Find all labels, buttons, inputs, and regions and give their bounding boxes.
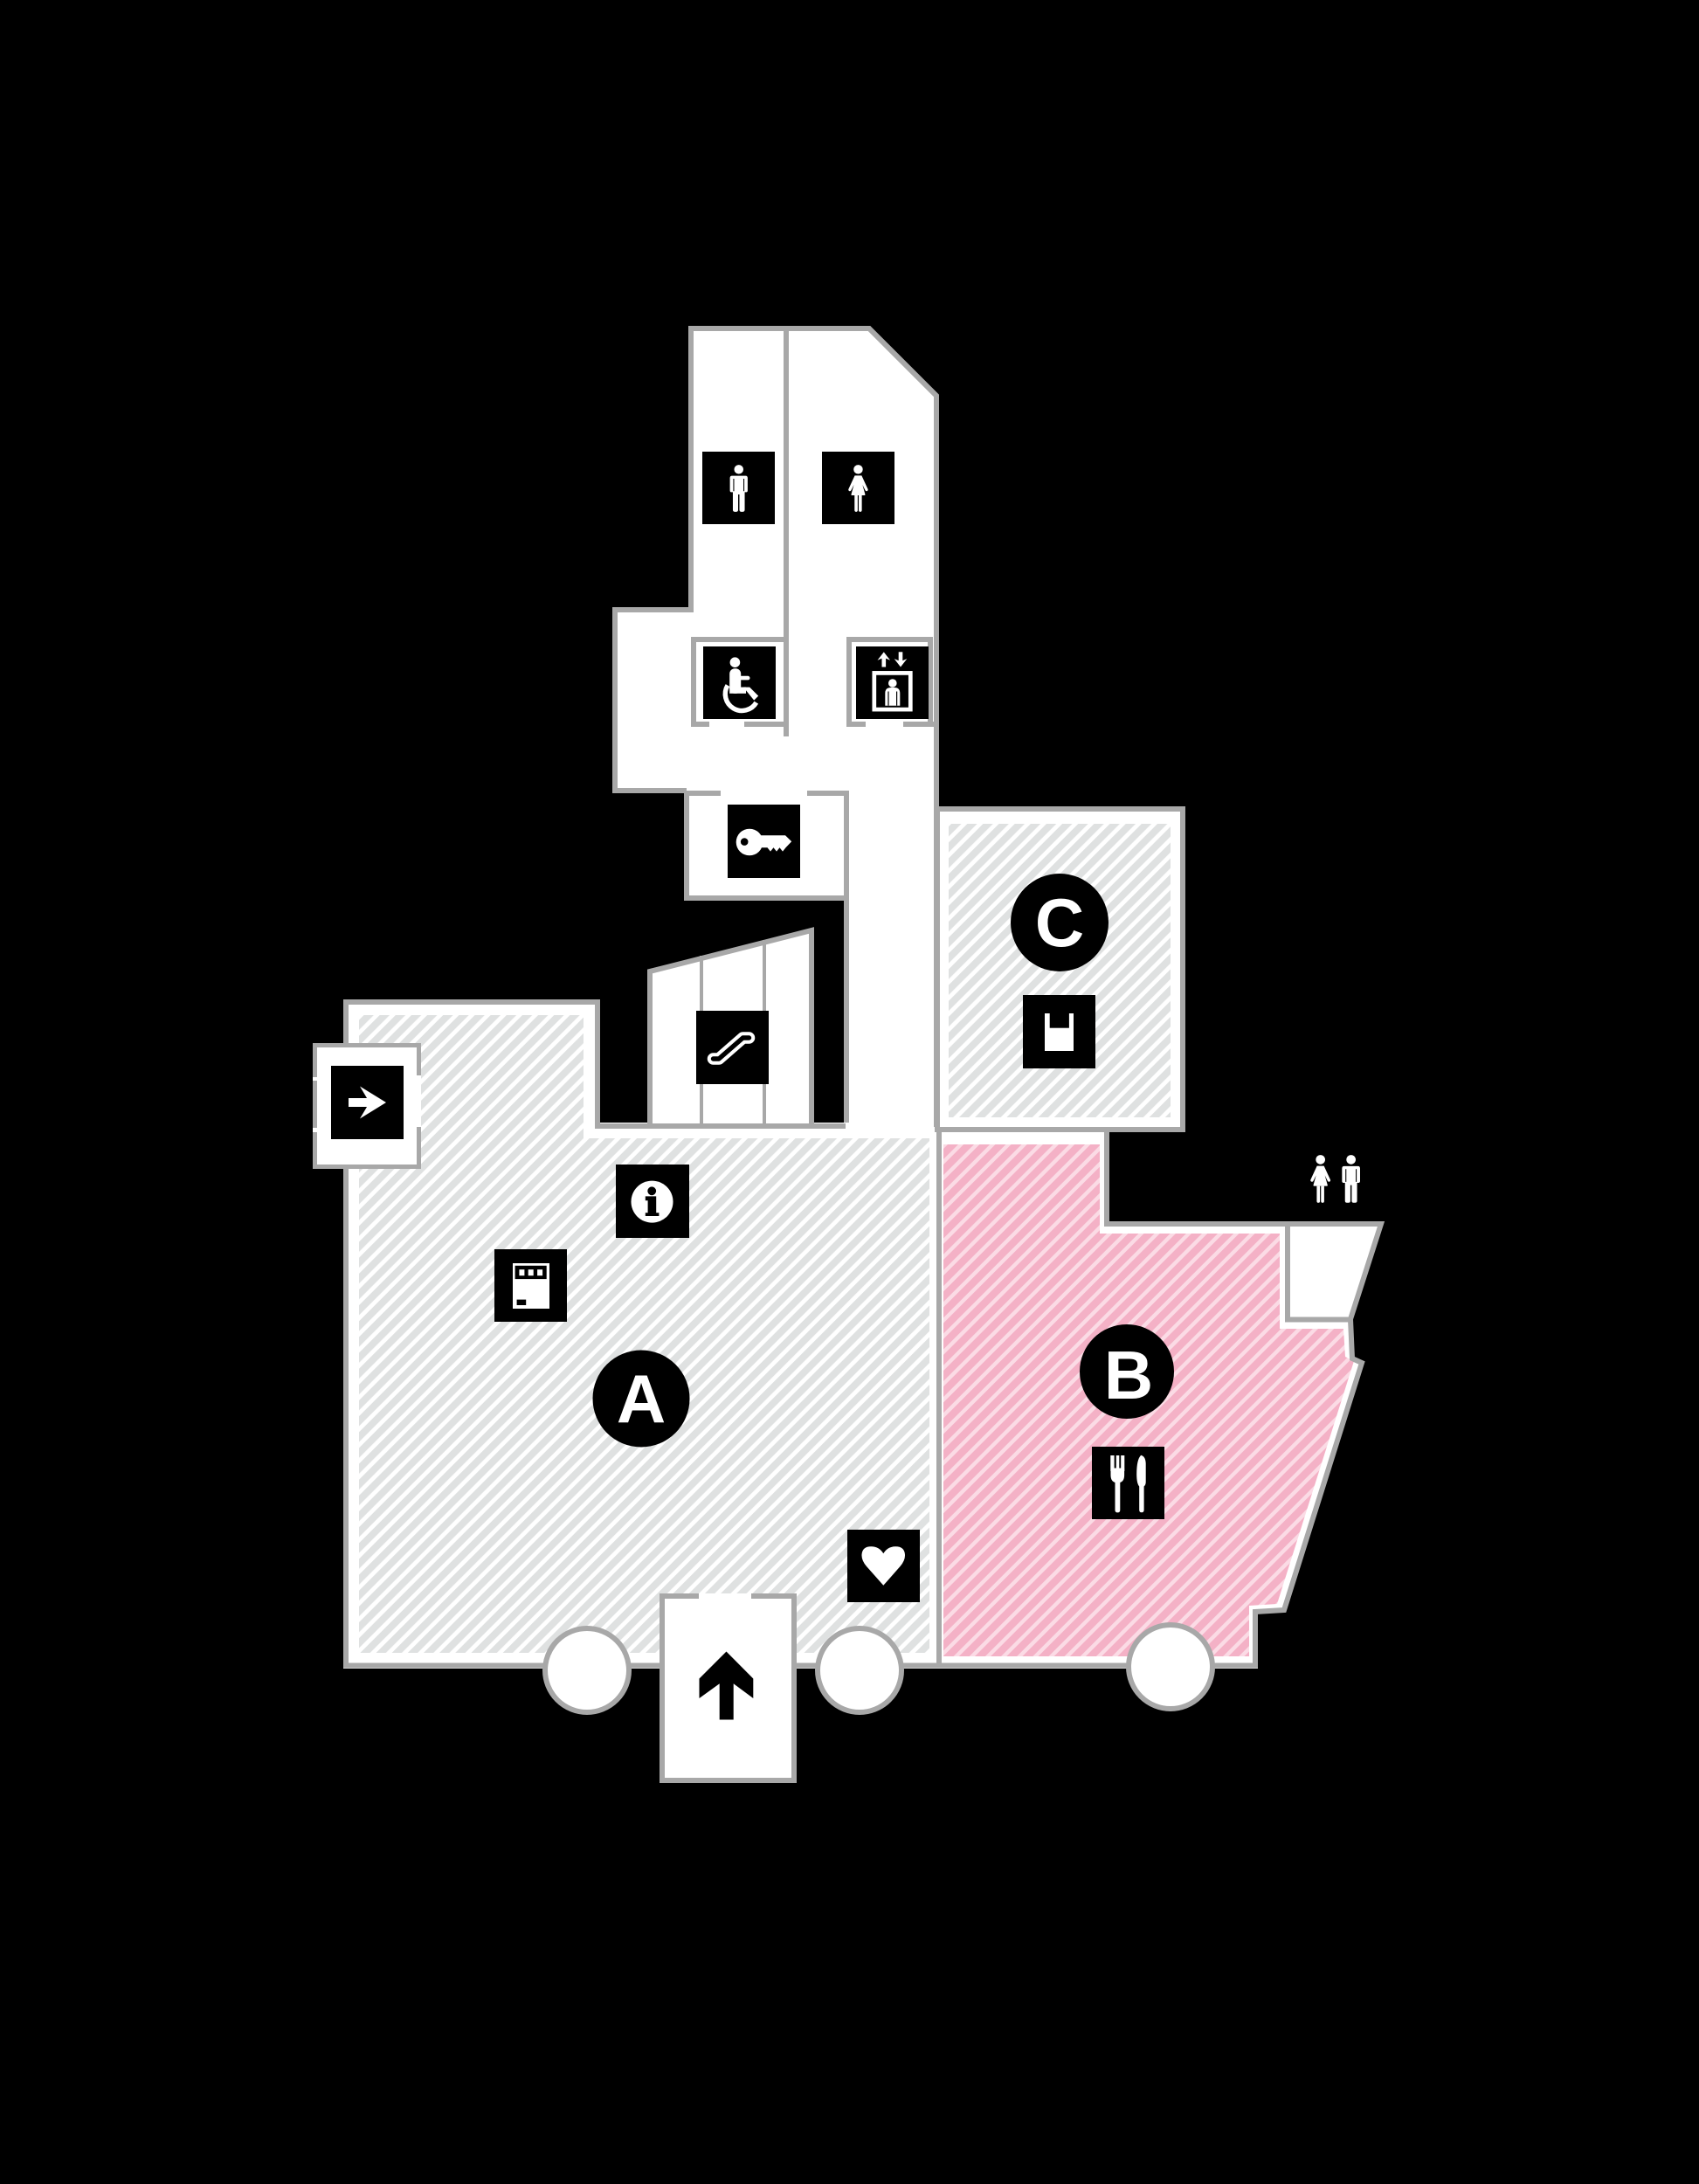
svg-text:C: C (1035, 884, 1084, 961)
svg-text:A: A (617, 1360, 666, 1437)
svg-text:B: B (1104, 1337, 1153, 1413)
